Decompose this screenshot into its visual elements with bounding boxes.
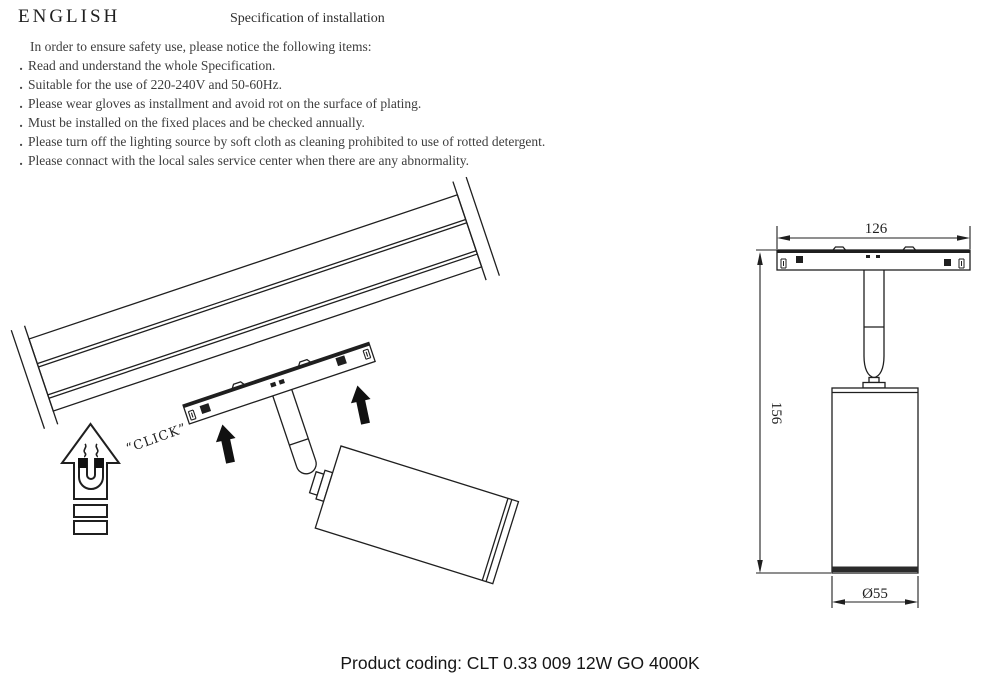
stem-rounded-end xyxy=(864,356,884,378)
stem-line xyxy=(273,396,297,467)
adapter-lug xyxy=(833,247,846,250)
dim-arrowhead xyxy=(832,599,845,605)
adapter-bar-front xyxy=(777,247,970,270)
click-label: “CLICK” xyxy=(124,421,189,457)
adapter-magnet-right xyxy=(336,356,346,365)
adapter-magnet-left xyxy=(200,404,210,413)
adapter-contact-dot xyxy=(271,383,276,387)
stem-front xyxy=(863,270,885,388)
specification-page: ENGLISH Specification of installation In… xyxy=(0,0,1000,690)
dim-arrowhead xyxy=(757,252,763,265)
stem-joint-line xyxy=(289,439,308,445)
magnet-arrow-outline xyxy=(62,424,119,499)
adapter-magnet-right xyxy=(944,259,951,266)
magnet-plate xyxy=(74,505,107,517)
diameter-dim-label: Ø55 xyxy=(862,586,888,602)
dim-arrowhead xyxy=(777,235,790,241)
adapter-lug xyxy=(903,247,916,250)
adapter-contact-dot xyxy=(876,255,880,258)
dim-arrowhead xyxy=(905,599,918,605)
product-coding: Product coding: CLT 0.33 009 12W GO 4000… xyxy=(40,653,1000,674)
adapter-contact-dot xyxy=(279,380,284,384)
adapter-magnet-left xyxy=(796,256,803,263)
adapter-contact-dot xyxy=(866,255,870,258)
track-channel-line xyxy=(38,223,466,367)
dimension-diagram: 126 xyxy=(756,221,970,608)
lamp-front xyxy=(832,388,918,573)
stem-line xyxy=(292,390,316,461)
stem-neck xyxy=(869,378,879,383)
dim-arrowhead xyxy=(957,235,970,241)
magnet-pole xyxy=(78,458,87,468)
dim-arrowhead xyxy=(757,560,763,573)
magnet-pole xyxy=(95,458,104,468)
lamp-collar xyxy=(863,383,885,389)
lamp-cylinder xyxy=(832,388,918,573)
width-dim-label: 126 xyxy=(865,221,888,237)
push-arrow-icon xyxy=(348,383,376,425)
installation-diagram: “CLICK” xyxy=(11,177,518,584)
magnet-plate xyxy=(74,521,107,534)
technical-drawings: “CLICK” 126 xyxy=(0,0,1000,690)
lamp-bottom-band xyxy=(832,567,918,573)
lamp-body-drawing xyxy=(300,441,518,583)
magnet-arrow-icon xyxy=(62,424,119,534)
height-dim-label: 156 xyxy=(768,402,784,425)
push-arrow-icon xyxy=(213,422,241,464)
